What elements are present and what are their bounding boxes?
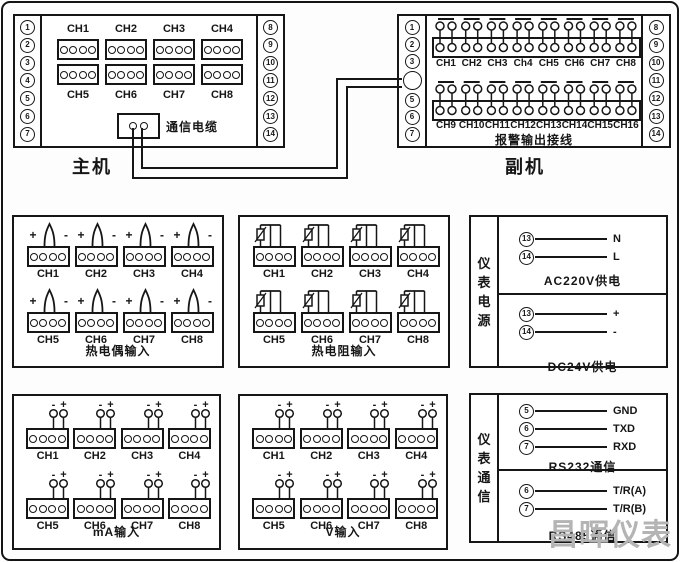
terminal-dot xyxy=(202,253,210,261)
signal-terminal-dot xyxy=(154,480,162,488)
channel-cell: +-CH6 xyxy=(75,288,118,347)
terminal-dot xyxy=(371,253,379,261)
terminal-dot xyxy=(39,435,47,443)
terminal-block xyxy=(123,312,166,333)
terminal-dot xyxy=(352,319,360,327)
terminal-dot xyxy=(602,44,610,52)
terminal-dot xyxy=(190,435,198,443)
terminal-circle-12: 12 xyxy=(263,91,278,106)
host-block-row-2 xyxy=(57,64,243,85)
channel-label: CH4 xyxy=(181,268,203,281)
terminal-dot xyxy=(513,85,521,93)
wiring-diagram: 1234567 891011121314 CH1CH2CH3CH4 CH5CH6… xyxy=(0,0,680,562)
comm-side-label: 仪表通信 xyxy=(471,395,499,541)
panel-caption: 热电阻输入 xyxy=(240,342,448,359)
host-channel-labels-top: CH1CH2CH3CH4 xyxy=(57,23,243,35)
plus-label: + xyxy=(77,294,84,308)
channel-cell: -+CH4 xyxy=(168,400,211,463)
connection-row: 13N xyxy=(499,230,666,248)
terminal-circle-9: 9 xyxy=(649,38,664,53)
plus-label: + xyxy=(173,294,180,308)
terminal-dot xyxy=(256,319,264,327)
terminal-dot xyxy=(409,319,417,327)
terminal-block xyxy=(75,246,118,267)
terminal-dot xyxy=(628,107,636,115)
terminal-dot xyxy=(448,107,456,115)
terminal-dot xyxy=(126,319,134,327)
terminal-dot xyxy=(448,85,456,93)
side-label-char: 表 xyxy=(477,276,490,289)
terminal-dot xyxy=(124,505,132,513)
thermocouple-symbol: +- xyxy=(75,222,118,246)
terminal-dot xyxy=(352,253,360,261)
thermocouple-symbol: +- xyxy=(171,222,214,246)
terminal-dot xyxy=(313,435,321,443)
terminal-dot xyxy=(117,71,125,79)
terminal-block xyxy=(168,498,211,519)
terminal-dot xyxy=(265,505,273,513)
polarity-symbol: -+ xyxy=(347,470,390,498)
terminal-dot xyxy=(303,435,311,443)
terminal-dot xyxy=(108,46,116,54)
terminal-dot xyxy=(525,22,533,30)
terminal-dot xyxy=(360,435,368,443)
terminal-circle-3: 3 xyxy=(20,56,35,71)
terminal-dot xyxy=(145,253,153,261)
terminal-dot xyxy=(127,71,135,79)
terminal-circle-13: 13 xyxy=(263,109,278,124)
side-label-char: 仪 xyxy=(477,257,490,270)
signal-terminal-dot xyxy=(60,480,68,488)
wire-line xyxy=(535,313,607,315)
terminal-block xyxy=(123,246,166,267)
side-label-char: 电 xyxy=(477,295,490,308)
terminal-dot xyxy=(379,435,387,443)
channel-label: CH3 xyxy=(359,268,381,281)
terminal-block xyxy=(397,246,440,267)
wire-end-label: N xyxy=(613,233,621,245)
terminal-dot xyxy=(30,319,38,327)
terminal-dot xyxy=(200,505,208,513)
terminal-dot xyxy=(590,22,598,30)
terminal-dot xyxy=(602,22,610,30)
connection-row: 14L xyxy=(499,248,666,266)
terminal-circle-11: 11 xyxy=(263,73,278,88)
thermocouple-symbol: +- xyxy=(27,288,70,312)
terminal-dot xyxy=(322,505,330,513)
thermocouple-junction-icon xyxy=(188,290,198,312)
terminal-dot xyxy=(181,435,189,443)
terminal-dot xyxy=(379,505,387,513)
terminal-dot xyxy=(332,505,340,513)
channel-grid: -+CH1-+CH2-+CH3-+CH4-+CH5-+CH6-+CH7-+CH8 xyxy=(250,400,440,533)
terminal-circle-14: 14 xyxy=(519,325,534,340)
terminal-dot xyxy=(398,505,406,513)
channel-label: CH4 xyxy=(405,450,427,463)
channel-cell: +-CH1 xyxy=(27,222,70,281)
channel-cell: CH3 xyxy=(349,222,392,281)
terminal-dot xyxy=(525,85,533,93)
terminal-dot xyxy=(303,505,311,513)
channel-cell: +-CH7 xyxy=(123,288,166,347)
terminal-dot xyxy=(577,107,585,115)
terminal-dot xyxy=(29,505,37,513)
terminal-dot xyxy=(284,505,292,513)
sub-channel-labels-1: CH1CH2CH3Ch4CH5CH6CH7CH8 xyxy=(427,58,641,70)
terminal-dot xyxy=(577,85,585,93)
wire-line xyxy=(535,490,607,492)
terminal-dot xyxy=(29,435,37,443)
minus-label: - xyxy=(160,294,164,308)
signal-terminal-dot xyxy=(202,410,210,418)
v-input-panel: -+CH1-+CH2-+CH3-+CH4-+CH5-+CH6-+CH7-+CH8… xyxy=(238,394,448,550)
terminal-dot xyxy=(539,44,547,52)
terminal-circle-8: 8 xyxy=(649,20,664,35)
signal-terminal-dot xyxy=(428,410,436,418)
section-caption: AC220V供电 xyxy=(499,272,666,289)
terminal-dot xyxy=(39,319,47,327)
connection-row: 6TXD xyxy=(499,420,666,438)
terminal-dot xyxy=(256,505,264,513)
terminal-dot xyxy=(565,44,573,52)
terminal-dot xyxy=(174,253,182,261)
terminal-dot xyxy=(304,319,312,327)
channel-cell: +-CH3 xyxy=(123,222,166,281)
terminal-dot xyxy=(106,319,114,327)
terminal-dot xyxy=(143,505,151,513)
terminal-dot xyxy=(616,44,624,52)
wire-end-label: TXD xyxy=(613,423,635,435)
terminal-dot xyxy=(400,253,408,261)
polarity-symbol: -+ xyxy=(395,470,438,498)
terminal-dot xyxy=(156,71,164,79)
connection-row: 7RXD xyxy=(499,438,666,456)
connection-row: 13+ xyxy=(499,305,666,323)
signal-terminal-dot xyxy=(276,410,284,418)
terminal-dot xyxy=(539,85,547,93)
terminal-circle-5: 5 xyxy=(405,93,420,108)
rtd-symbol xyxy=(301,222,344,246)
terminal-circle-1: 1 xyxy=(20,20,35,35)
terminal-dot xyxy=(436,22,444,30)
terminal-dot xyxy=(136,71,144,79)
terminal-dot xyxy=(628,44,636,52)
terminal-dot xyxy=(577,44,585,52)
plus-label: + xyxy=(29,228,36,242)
wire-end-label: + xyxy=(613,308,619,320)
terminal-dot xyxy=(487,85,495,93)
channel-cell: +-CH5 xyxy=(27,288,70,347)
panel-caption: mA输入 xyxy=(14,523,219,540)
terminal-dot xyxy=(58,435,66,443)
terminal-dot xyxy=(79,71,87,79)
terminal-dot xyxy=(275,253,283,261)
polarity-symbol: -+ xyxy=(347,400,390,428)
channel-cell: CH8 xyxy=(397,288,440,347)
sub-unit-panel: 123567 891011121314 CH1CH2CH3Ch4CH5CH6CH… xyxy=(397,14,671,148)
terminal-dot xyxy=(417,505,425,513)
channel-cell: CH5 xyxy=(253,288,296,347)
terminal-dot xyxy=(539,22,547,30)
terminal-circle-2: 2 xyxy=(405,37,420,52)
wire-end-label: RXD xyxy=(613,441,636,453)
channel-label: CH1 xyxy=(263,268,285,281)
terminal-dot xyxy=(628,85,636,93)
ac-power-section: 13N14LAC220V供电 xyxy=(499,217,666,295)
terminal-dot xyxy=(284,253,292,261)
terminal-block xyxy=(171,246,214,267)
power-side-label: 仪表电源 xyxy=(471,217,499,366)
terminal-circle-4: 4 xyxy=(20,73,35,88)
rtd-symbol xyxy=(397,288,440,312)
terminal-dot xyxy=(419,253,427,261)
terminal-dot xyxy=(97,253,105,261)
channel-label: CH1 xyxy=(37,268,59,281)
signal-terminal-dot xyxy=(418,410,426,418)
terminal-dot xyxy=(513,22,521,30)
thermocouple-symbol: +- xyxy=(123,288,166,312)
terminal-dot xyxy=(602,107,610,115)
terminal-dot xyxy=(499,44,507,52)
thermocouple-junction-icon xyxy=(44,290,54,312)
terminal-dot xyxy=(165,71,173,79)
wire-line xyxy=(535,410,607,412)
signal-terminal-dot xyxy=(192,410,200,418)
terminal-circle-11: 11 xyxy=(649,73,664,88)
terminal-dot xyxy=(174,319,182,327)
terminal-dot xyxy=(193,319,201,327)
terminal-circle-13: 13 xyxy=(519,307,534,322)
terminal-dot xyxy=(96,435,104,443)
signal-terminal-dot xyxy=(50,480,58,488)
terminal-dot xyxy=(143,435,151,443)
terminal-circle-10: 10 xyxy=(263,56,278,71)
minus-label: - xyxy=(64,228,68,242)
wire-line xyxy=(535,256,607,258)
channel-cell: CH7 xyxy=(349,288,392,347)
rtd-symbol xyxy=(253,222,296,246)
comm-cable-connector xyxy=(117,113,160,139)
terminal-dot xyxy=(30,253,38,261)
channel-label: CH3 xyxy=(133,268,155,281)
terminal-block xyxy=(26,428,69,449)
terminal-dot xyxy=(487,44,495,52)
signal-terminal-dot xyxy=(107,410,115,418)
terminal-circle-9: 9 xyxy=(263,38,278,53)
channel-label: CH4 xyxy=(407,268,429,281)
signal-terminal-dot xyxy=(202,480,210,488)
terminal-dot xyxy=(126,253,134,261)
polarity-symbol: -+ xyxy=(300,400,343,428)
terminal-dot xyxy=(77,505,85,513)
terminal-dot xyxy=(427,505,435,513)
terminal-dot xyxy=(108,71,116,79)
rs232-section: 5GND6TXD7RXDRS232通信 xyxy=(499,395,666,471)
terminal-dot xyxy=(39,505,47,513)
terminal-dot xyxy=(39,253,47,261)
terminal-block xyxy=(27,312,70,333)
channel-label: CH3 xyxy=(131,450,153,463)
terminal-dot xyxy=(462,22,470,30)
terminal-dot xyxy=(265,435,273,443)
brand-watermark: 昌晖仪表 xyxy=(548,510,672,554)
terminal-dot xyxy=(616,107,624,115)
terminal-dot xyxy=(408,435,416,443)
thermocouple-symbol: +- xyxy=(171,288,214,312)
terminal-dot xyxy=(332,253,340,261)
terminal-dot xyxy=(78,253,86,261)
polarity-symbol: -+ xyxy=(73,470,116,498)
terminal-block xyxy=(121,498,164,519)
terminal-dot xyxy=(204,46,212,54)
terminal-block xyxy=(252,498,295,519)
terminal-dot xyxy=(87,253,95,261)
polarity-symbol: -+ xyxy=(252,470,295,498)
terminal-dot xyxy=(77,435,85,443)
wire-end-label: - xyxy=(613,326,617,338)
terminal-dot xyxy=(88,71,96,79)
comm-cable-label: 通信电缆 xyxy=(166,118,218,135)
side-label-char: 表 xyxy=(477,452,490,465)
wire-line xyxy=(535,331,607,333)
terminal-block xyxy=(73,498,116,519)
terminal-dot xyxy=(48,435,56,443)
terminal-block xyxy=(121,428,164,449)
terminal-circle-10: 10 xyxy=(649,56,664,71)
plus-label: + xyxy=(77,228,84,242)
channel-grid: -+CH1-+CH2-+CH3-+CH4-+CH5-+CH6-+CH7-+CH8 xyxy=(24,400,213,533)
rtd-symbol xyxy=(349,288,392,312)
terminal-circle-5: 5 xyxy=(20,91,35,106)
terminal-dot xyxy=(499,107,507,115)
terminal-block xyxy=(201,39,243,60)
terminal-dot xyxy=(87,319,95,327)
terminal-dot xyxy=(58,505,66,513)
terminal-dot xyxy=(380,253,388,261)
channel-cell: -+CH2 xyxy=(300,400,343,463)
terminal-circle-13: 13 xyxy=(649,109,664,124)
terminal-dot xyxy=(124,435,132,443)
terminal-dot xyxy=(313,253,321,261)
terminal-dot xyxy=(60,46,68,54)
terminal-dot xyxy=(304,253,312,261)
channel-label: CH4 xyxy=(178,450,200,463)
terminal-dot xyxy=(184,71,192,79)
polarity-symbol: -+ xyxy=(121,400,164,428)
channel-label: CH8 xyxy=(610,58,642,69)
terminal-dot xyxy=(409,253,417,261)
terminal-dot xyxy=(427,435,435,443)
terminal-dot xyxy=(79,46,87,54)
rtd-input-panel: CH1CH2CH3CH4CH5CH6CH7CH8 热电阻输入 xyxy=(238,215,450,368)
alarm-output-caption: 报警输出接线 xyxy=(399,131,669,148)
terminal-block xyxy=(300,498,343,519)
terminal-dot xyxy=(97,319,105,327)
terminal-dot xyxy=(135,319,143,327)
channel-label: CH1 xyxy=(57,23,99,35)
plus-label: + xyxy=(173,228,180,242)
terminal-dot xyxy=(127,46,135,54)
terminal-dot xyxy=(408,505,416,513)
cable-pin xyxy=(140,122,148,130)
terminal-dot xyxy=(60,71,68,79)
terminal-block xyxy=(105,39,147,60)
signal-terminal-dot xyxy=(107,480,115,488)
terminal-block xyxy=(397,312,440,333)
terminal-dot xyxy=(462,44,470,52)
wire-end-label: GND xyxy=(613,405,637,417)
terminal-dot xyxy=(200,435,208,443)
terminal-dot xyxy=(448,22,456,30)
signal-terminal-dot xyxy=(97,410,105,418)
terminal-dot xyxy=(86,435,94,443)
terminal-dot xyxy=(361,253,369,261)
terminal-dot xyxy=(165,46,173,54)
rtd-symbol xyxy=(349,222,392,246)
terminal-dot xyxy=(265,253,273,261)
terminal-dot xyxy=(193,253,201,261)
terminal-dot xyxy=(152,505,160,513)
terminal-dot xyxy=(256,435,264,443)
terminal-circle-13: 13 xyxy=(519,232,534,247)
thermocouple-symbol: +- xyxy=(123,222,166,246)
polarity-symbol: -+ xyxy=(26,470,69,498)
side-label-char: 仪 xyxy=(477,433,490,446)
terminal-block xyxy=(73,428,116,449)
terminal-dot xyxy=(154,253,162,261)
terminal-dot xyxy=(213,46,221,54)
terminal-dot xyxy=(448,44,456,52)
terminal-dot xyxy=(400,319,408,327)
thermocouple-junction-icon xyxy=(140,224,150,246)
terminal-dot xyxy=(49,253,57,261)
terminal-dot xyxy=(417,435,425,443)
terminal-dot xyxy=(462,107,470,115)
polarity-symbol: -+ xyxy=(300,470,343,498)
rtd-symbol xyxy=(253,288,296,312)
terminal-circle-14: 14 xyxy=(519,250,534,265)
signal-terminal-dot xyxy=(276,480,284,488)
host-left-terminal-strip: 1234567 xyxy=(15,16,42,146)
terminal-block xyxy=(57,39,99,60)
terminal-dot xyxy=(351,505,359,513)
terminal-block xyxy=(171,312,214,333)
host-right-terminal-strip: 891011121314 xyxy=(256,16,283,146)
channel-cell: -+CH4 xyxy=(395,400,438,463)
terminal-dot xyxy=(474,85,482,93)
polarity-symbol: -+ xyxy=(26,400,69,428)
terminal-dot xyxy=(590,44,598,52)
terminal-dot xyxy=(428,253,436,261)
signal-terminal-dot xyxy=(371,410,379,418)
terminal-dot xyxy=(202,319,210,327)
terminal-dot xyxy=(565,22,573,30)
terminal-dot xyxy=(135,253,143,261)
thermocouple-symbol: +- xyxy=(27,222,70,246)
wire-line xyxy=(535,428,607,430)
minus-label: - xyxy=(64,294,68,308)
host-unit-panel: 1234567 891011121314 CH1CH2CH3CH4 CH5CH6… xyxy=(13,14,285,148)
channel-label: CH2 xyxy=(85,268,107,281)
signal-terminal-dot xyxy=(333,410,341,418)
terminal-dot xyxy=(474,44,482,52)
terminal-block xyxy=(153,64,195,85)
channel-label: CH3 xyxy=(153,23,195,35)
channel-cell: -+CH3 xyxy=(347,400,390,463)
channel-cell: CH1 xyxy=(253,222,296,281)
signal-terminal-dot xyxy=(144,480,152,488)
dc-power-section: 13+14-DC24V供电 xyxy=(499,297,666,366)
